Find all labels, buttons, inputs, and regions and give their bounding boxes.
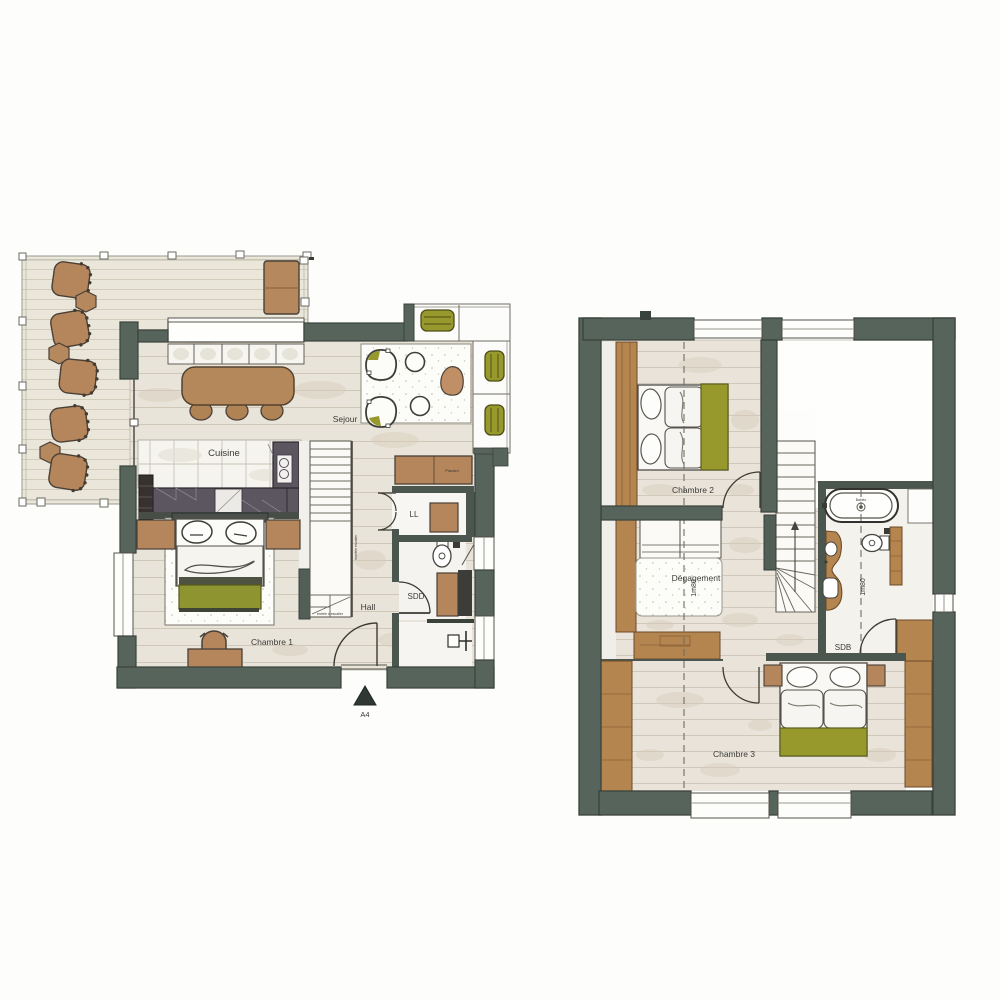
svg-text:1m80: 1m80 xyxy=(860,578,867,596)
svg-text:LL: LL xyxy=(410,510,419,519)
svg-text:Hall: Hall xyxy=(361,602,376,612)
svg-text:Chambre 1: Chambre 1 xyxy=(251,637,293,647)
svg-text:SDD: SDD xyxy=(408,592,425,601)
svg-text:Balnéo: Balnéo xyxy=(856,498,867,502)
svg-text:entrée d'escalier: entrée d'escalier xyxy=(317,612,344,616)
svg-text:Placard: Placard xyxy=(445,468,459,473)
svg-text:A4: A4 xyxy=(360,710,369,719)
svg-text:1m80: 1m80 xyxy=(691,579,698,597)
svg-text:montée escalier: montée escalier xyxy=(354,534,358,560)
svg-text:Chambre 2: Chambre 2 xyxy=(672,485,714,495)
svg-text:Chambre 3: Chambre 3 xyxy=(713,749,755,759)
svg-text:Cuisine: Cuisine xyxy=(208,448,240,459)
svg-text:Sejour: Sejour xyxy=(333,414,358,424)
svg-text:SDB: SDB xyxy=(835,643,851,652)
